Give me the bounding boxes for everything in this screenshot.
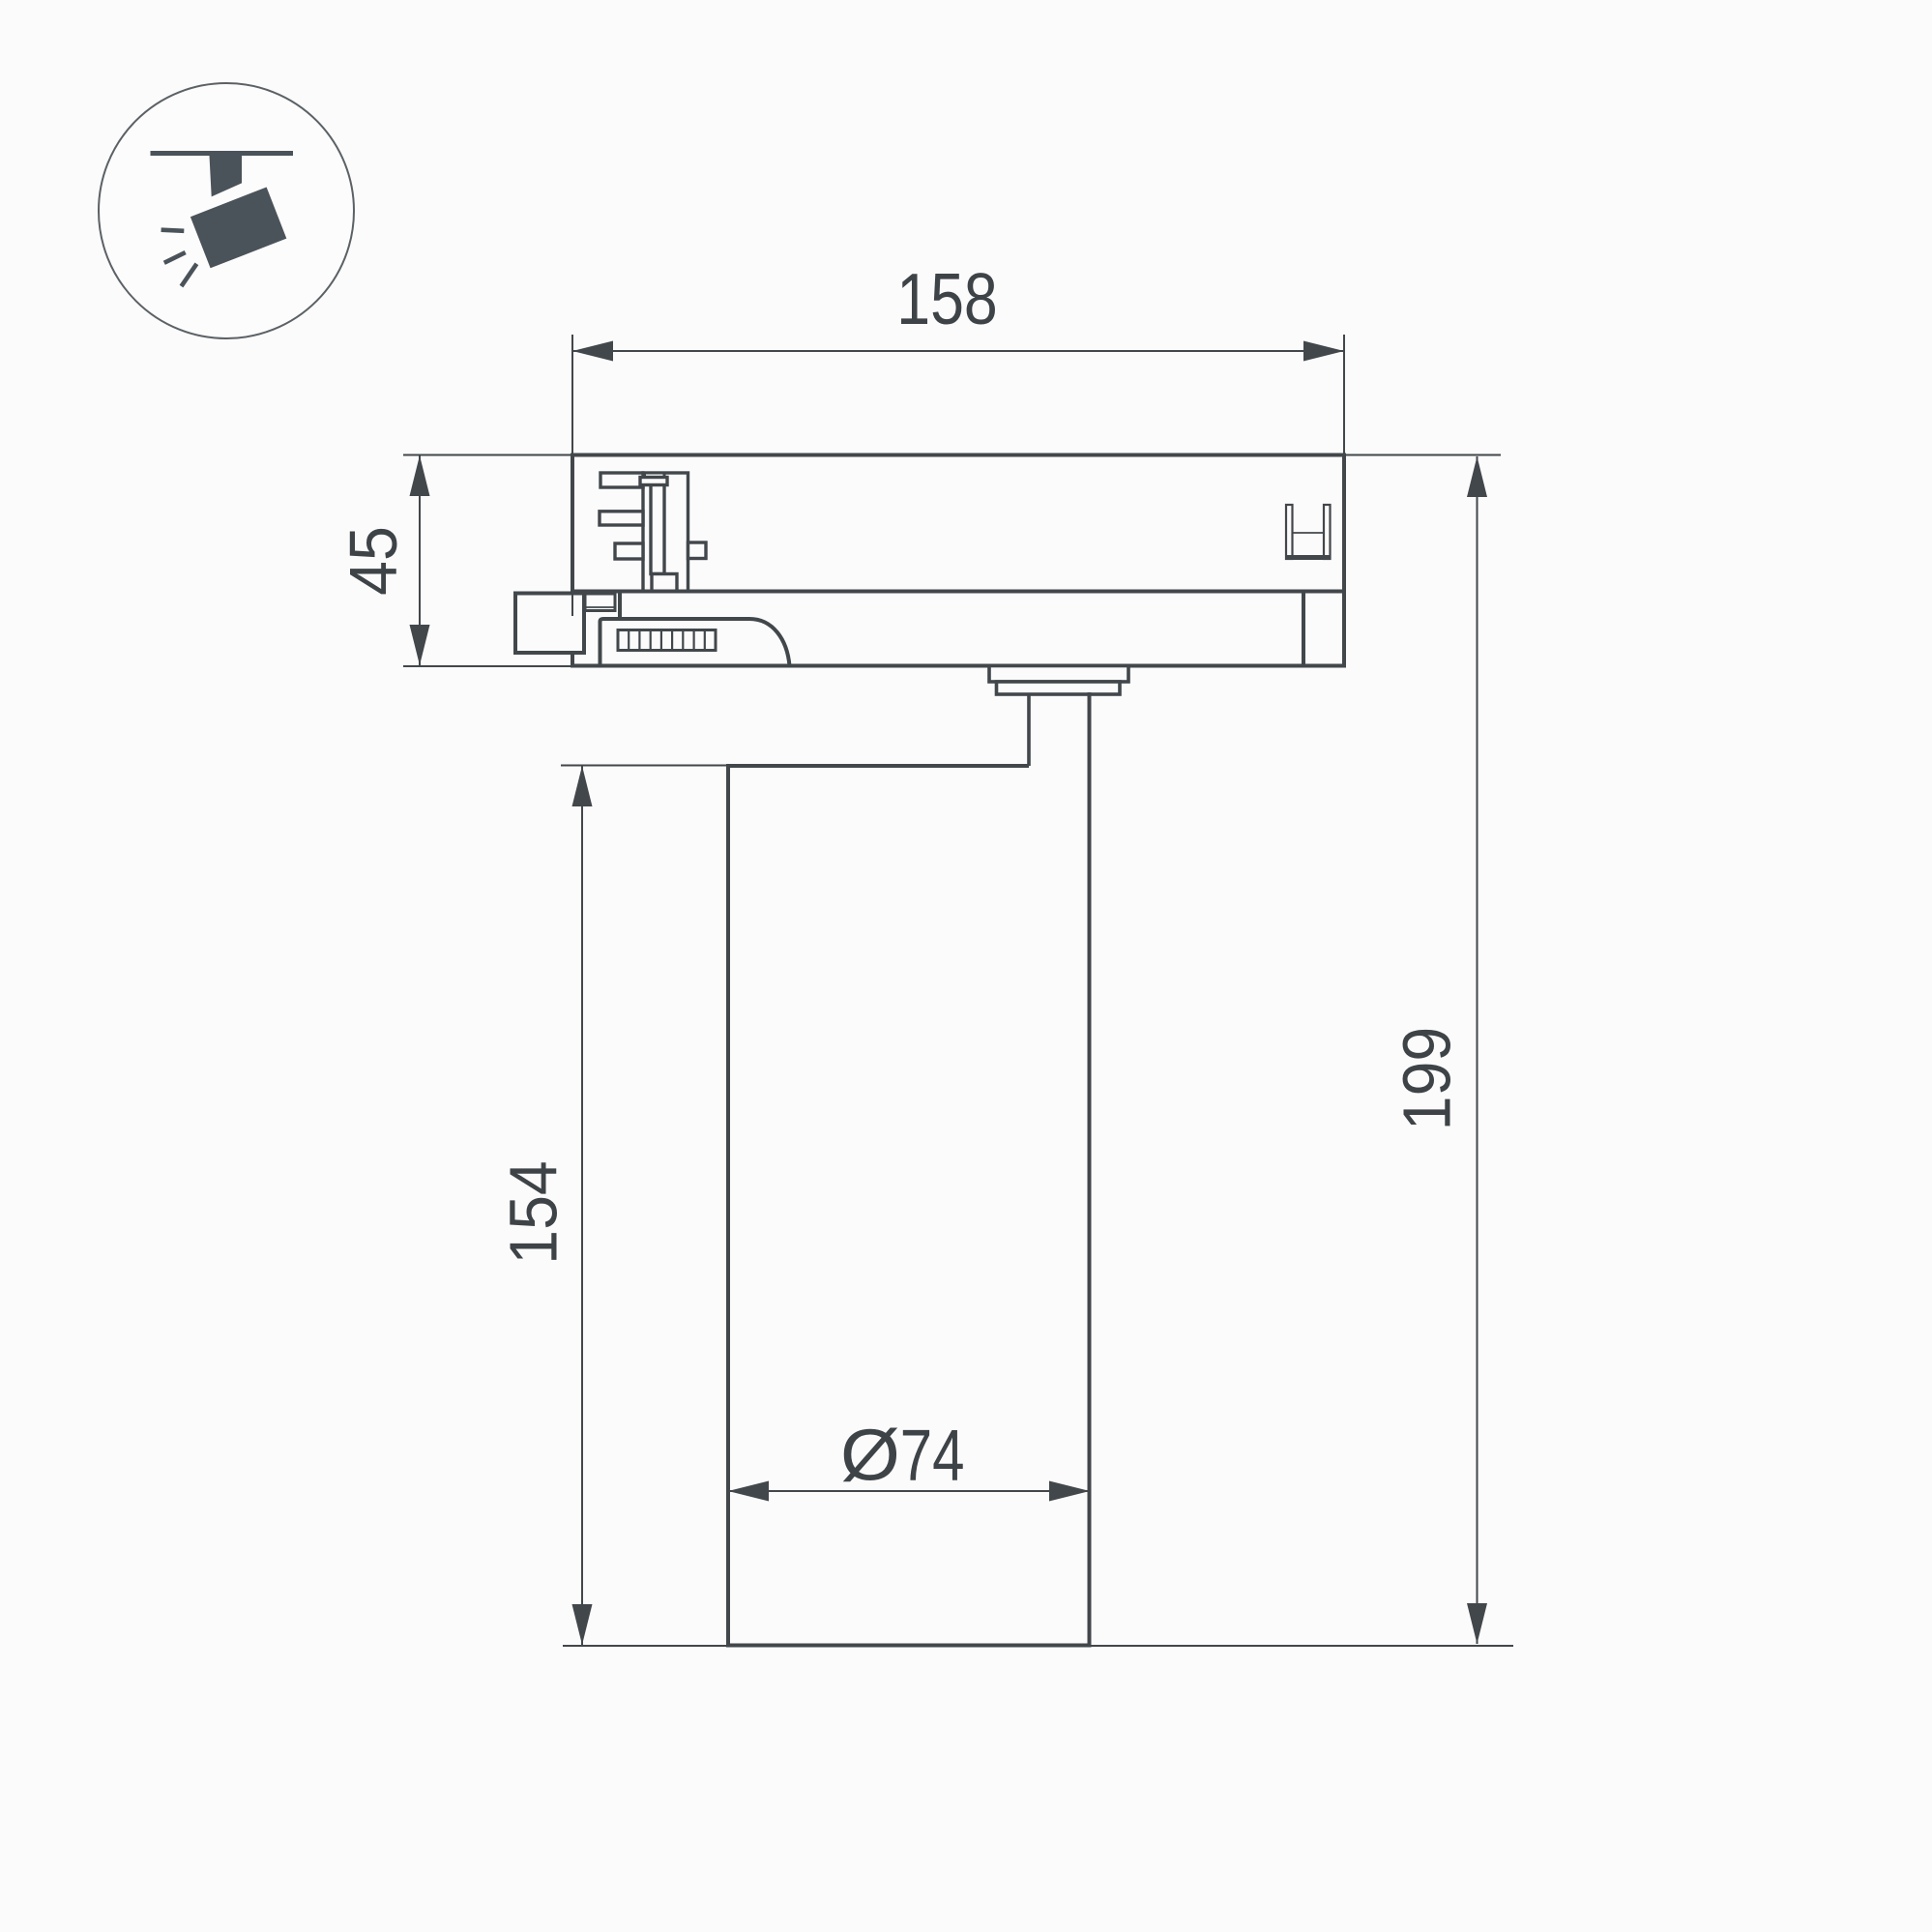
svg-text:Ø: Ø	[840, 1416, 900, 1496]
svg-text:74: 74	[900, 1416, 965, 1496]
svg-text:154: 154	[496, 1160, 571, 1264]
svg-text:158: 158	[896, 258, 997, 340]
svg-text:45: 45	[337, 526, 412, 596]
svg-text:199: 199	[1390, 1027, 1465, 1130]
